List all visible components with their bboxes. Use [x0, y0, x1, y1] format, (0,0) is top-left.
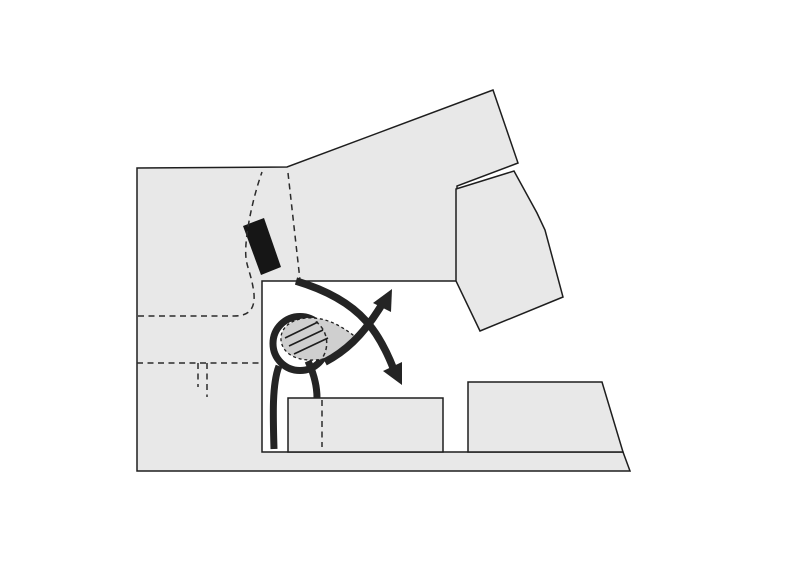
building-lower-right — [468, 382, 623, 452]
leaf-shape — [281, 318, 358, 360]
diagram-canvas — [0, 0, 800, 567]
building-lower-center — [288, 398, 443, 452]
site-plan-svg — [0, 0, 800, 567]
flow-stem-channel — [273, 366, 279, 449]
building-right — [456, 171, 563, 331]
